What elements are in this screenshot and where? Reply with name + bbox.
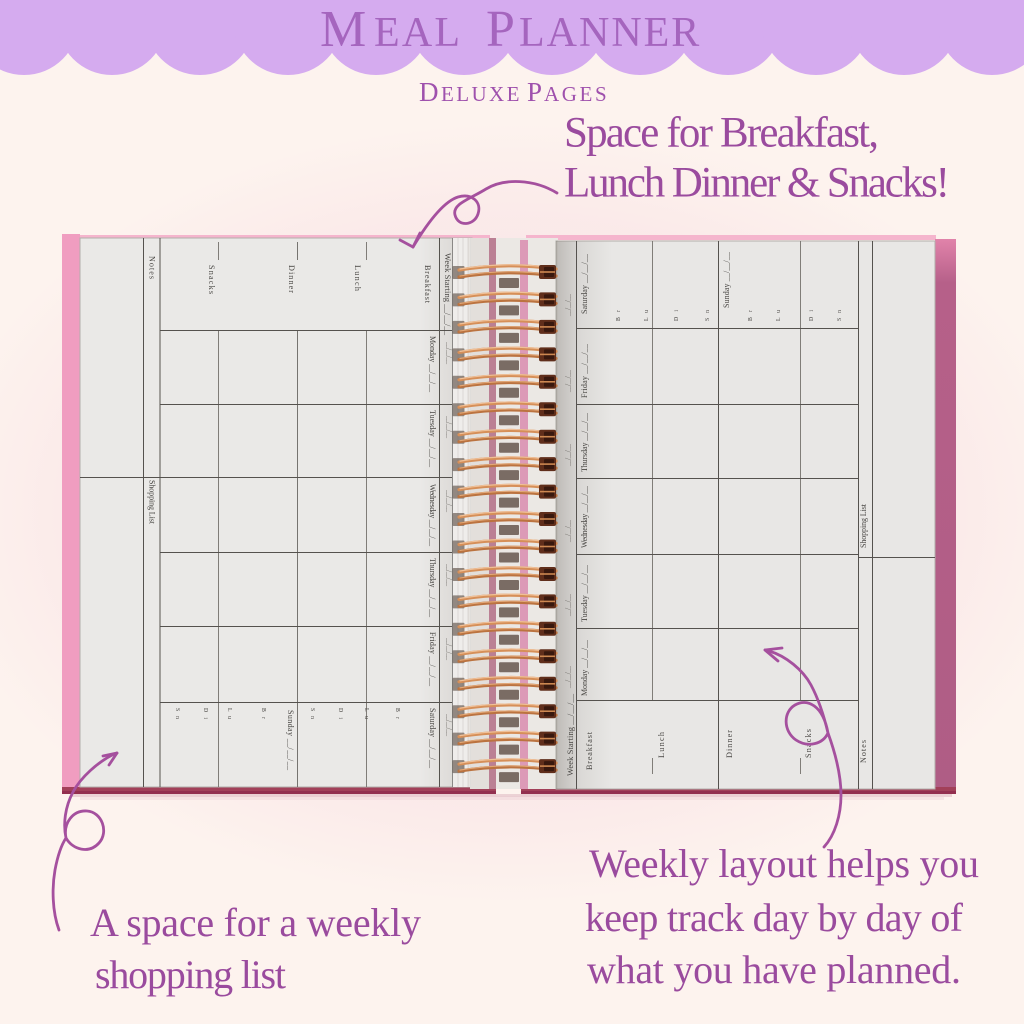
svg-text:Shopping List: Shopping List [148,480,157,525]
svg-text:Shopping List: Shopping List [859,503,868,548]
svg-text:Thursday __/__/__: Thursday __/__/__ [428,558,437,618]
svg-text:__/__/__: __/__/__ [563,520,572,543]
svg-text:EAL: EAL [374,10,462,56]
svg-text:__/__/__: __/__/__ [563,594,572,617]
svg-text:Space for Breakfast,: Space for Breakfast, [564,110,879,157]
svg-text:Notes: Notes [859,740,868,763]
svg-text:AGES: AGES [544,82,609,106]
svg-text:Wednesday __/__/__: Wednesday __/__/__ [428,484,437,547]
svg-text:__/__/__: __/__/__ [563,294,572,317]
svg-text:Saturday __/__/__: Saturday __/__/__ [580,253,589,314]
svg-text:shopping list: shopping list [95,952,286,997]
svg-text:__/__/__: __/__/__ [563,444,572,467]
svg-text:Tuesday __/__/__: Tuesday __/__/__ [428,410,437,468]
svg-text:Lunch: Lunch [353,265,362,291]
svg-text:Breakfast: Breakfast [585,731,594,770]
svg-text:Lunch: Lunch [657,732,666,758]
svg-text:D: D [419,77,439,107]
svg-text:__/__/__: __/__/__ [563,370,572,393]
svg-text:Notes: Notes [148,256,157,279]
svg-text:Lunch Dinner & Snacks!: Lunch Dinner & Snacks! [564,160,950,207]
svg-text:Weekly layout helps you: Weekly layout helps you [589,841,979,886]
svg-text:Dinner: Dinner [287,265,296,293]
svg-text:P: P [527,77,542,107]
svg-text:LANNER: LANNER [519,10,701,56]
svg-text:Friday __/__/__: Friday __/__/__ [428,632,437,687]
svg-text:Snacks: Snacks [207,265,216,294]
svg-text:A space for a weekly: A space for a weekly [90,900,421,945]
svg-text:Week Starting __/__/__: Week Starting __/__/__ [443,253,453,336]
svg-text:Friday __/__/__: Friday __/__/__ [580,343,589,398]
svg-text:Sunday __/__/__: Sunday __/__/__ [722,251,731,308]
svg-text:Sunday __/__/__: Sunday __/__/__ [286,710,295,771]
svg-text:Saturday __/__/__: Saturday __/__/__ [428,708,437,769]
svg-text:Dinner: Dinner [725,730,734,758]
svg-text:what you have planned.: what you have planned. [587,947,961,992]
svg-text:Monday __/__/__: Monday __/__/__ [580,639,589,696]
svg-text:keep track day by day of: keep track day by day of [585,895,964,940]
svg-text:Thursday __/__/__: Thursday __/__/__ [580,412,589,472]
svg-text:ELUXE: ELUXE [441,82,522,106]
svg-text:Monday __/__/__: Monday __/__/__ [428,336,437,393]
svg-text:Tuesday __/__/__: Tuesday __/__/__ [580,564,589,622]
svg-text:M: M [320,1,366,58]
svg-text:Breakfast: Breakfast [423,265,432,304]
svg-text:__/__/__: __/__/__ [563,666,572,689]
svg-text:Wednesday __/__/__: Wednesday __/__/__ [580,485,589,548]
svg-text:Week Starting __/__/__: Week Starting __/__/__ [565,693,575,776]
svg-text:P: P [486,1,515,58]
